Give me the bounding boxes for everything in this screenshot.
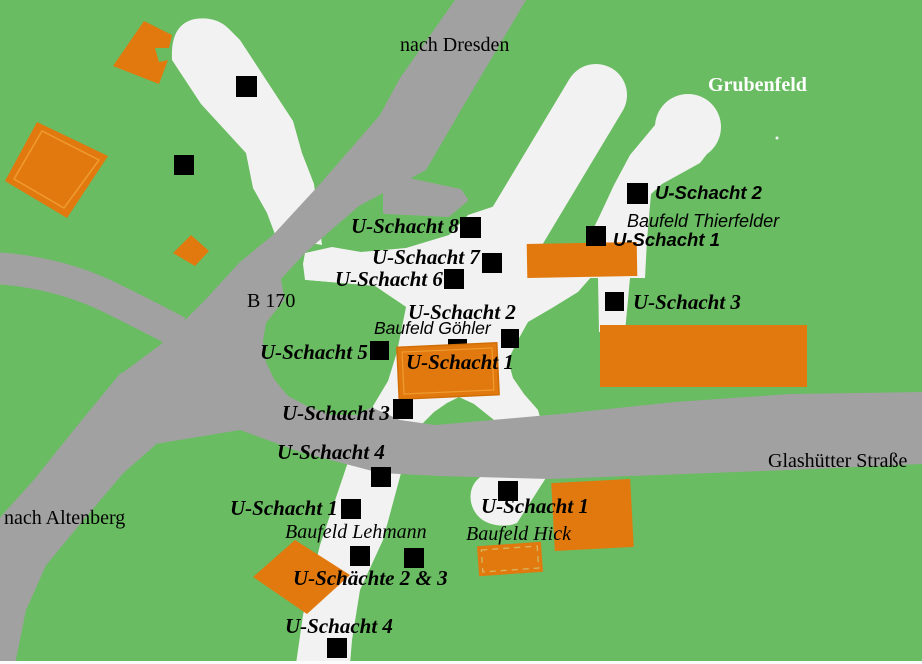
svg-text:B 170: B 170 xyxy=(247,290,295,312)
svg-text:U-Schacht 3: U-Schacht 3 xyxy=(282,401,390,425)
svg-text:U-Schacht 4: U-Schacht 4 xyxy=(277,440,385,464)
svg-text:U-Schacht 2: U-Schacht 2 xyxy=(655,182,763,203)
svg-text:U-Schacht 1: U-Schacht 1 xyxy=(230,496,338,520)
svg-text:U-Schacht 5: U-Schacht 5 xyxy=(260,340,368,364)
svg-text:Baufeld Thierfelder: Baufeld Thierfelder xyxy=(627,211,780,231)
svg-text:nach Altenberg: nach Altenberg xyxy=(4,507,125,529)
svg-text:Baufeld Hick: Baufeld Hick xyxy=(466,523,572,545)
svg-text:Baufeld Lehmann: Baufeld Lehmann xyxy=(285,521,427,543)
svg-text:Glashütter Straße: Glashütter Straße xyxy=(768,450,908,472)
svg-text:U-Schacht 1: U-Schacht 1 xyxy=(613,229,720,250)
svg-text:U-Schacht 3: U-Schacht 3 xyxy=(633,290,741,314)
svg-text:Grubenfeld: Grubenfeld xyxy=(708,74,807,96)
svg-text:Baufeld Göhler: Baufeld Göhler xyxy=(374,318,492,338)
svg-text:U-Schacht 4: U-Schacht 4 xyxy=(285,614,393,638)
svg-text:U-Schächte 2 & 3: U-Schächte 2 & 3 xyxy=(293,566,448,590)
svg-text:U-Schacht 8: U-Schacht 8 xyxy=(351,214,459,238)
svg-text:U-Schacht 6: U-Schacht 6 xyxy=(335,267,443,291)
svg-text:U-Schacht 1: U-Schacht 1 xyxy=(406,350,514,374)
svg-text:nach Dresden: nach Dresden xyxy=(400,34,509,56)
svg-text:U-Schacht 7: U-Schacht 7 xyxy=(372,245,481,269)
svg-text:U-Schacht 1: U-Schacht 1 xyxy=(481,494,589,518)
